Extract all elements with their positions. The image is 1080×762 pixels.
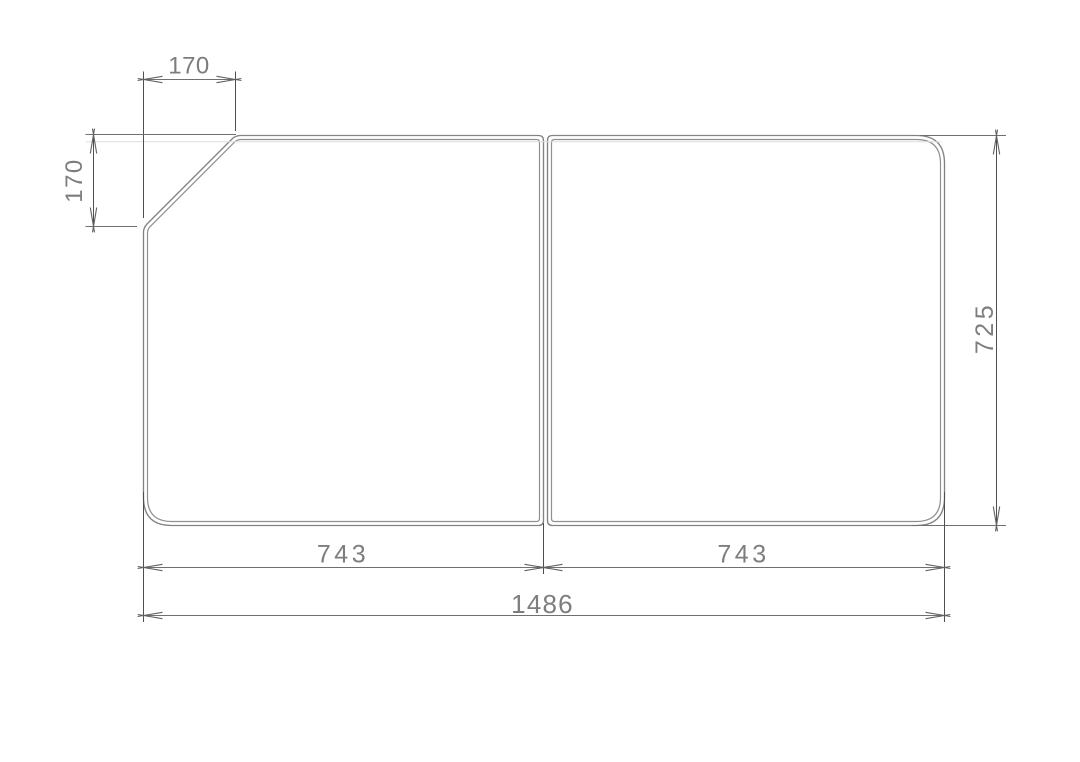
- svg-text:170: 170: [61, 158, 88, 203]
- svg-text:1486: 1486: [511, 589, 574, 619]
- svg-text:170: 170: [168, 53, 210, 80]
- svg-text:743: 743: [717, 541, 769, 569]
- svg-text:743: 743: [317, 541, 369, 569]
- svg-text:725: 725: [971, 302, 999, 354]
